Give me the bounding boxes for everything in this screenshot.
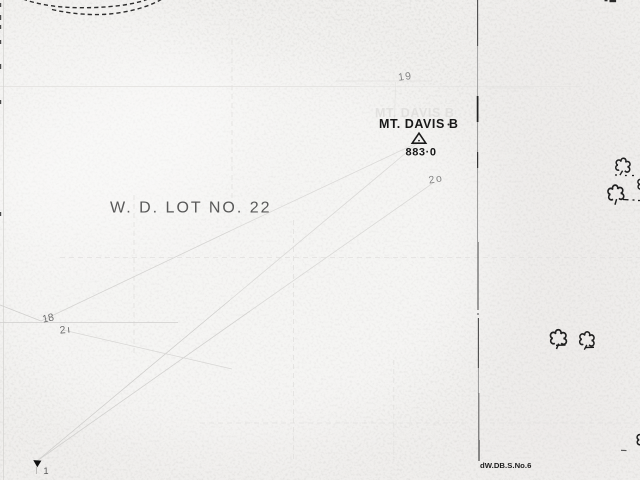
svg-text:19: 19	[397, 70, 413, 84]
svg-text:883·0: 883·0	[406, 147, 437, 159]
svg-text:2o: 2o	[428, 172, 445, 186]
svg-text:2ı: 2ı	[59, 323, 73, 336]
svg-text:1: 1	[44, 466, 49, 476]
svg-text:W. D. LOT NO. 22: W. D. LOT NO. 22	[110, 200, 272, 217]
svg-text:MT. DAVIS B: MT. DAVIS B	[379, 117, 458, 131]
svg-text:dW.DB.S.No.6: dW.DB.S.No.6	[480, 461, 531, 470]
